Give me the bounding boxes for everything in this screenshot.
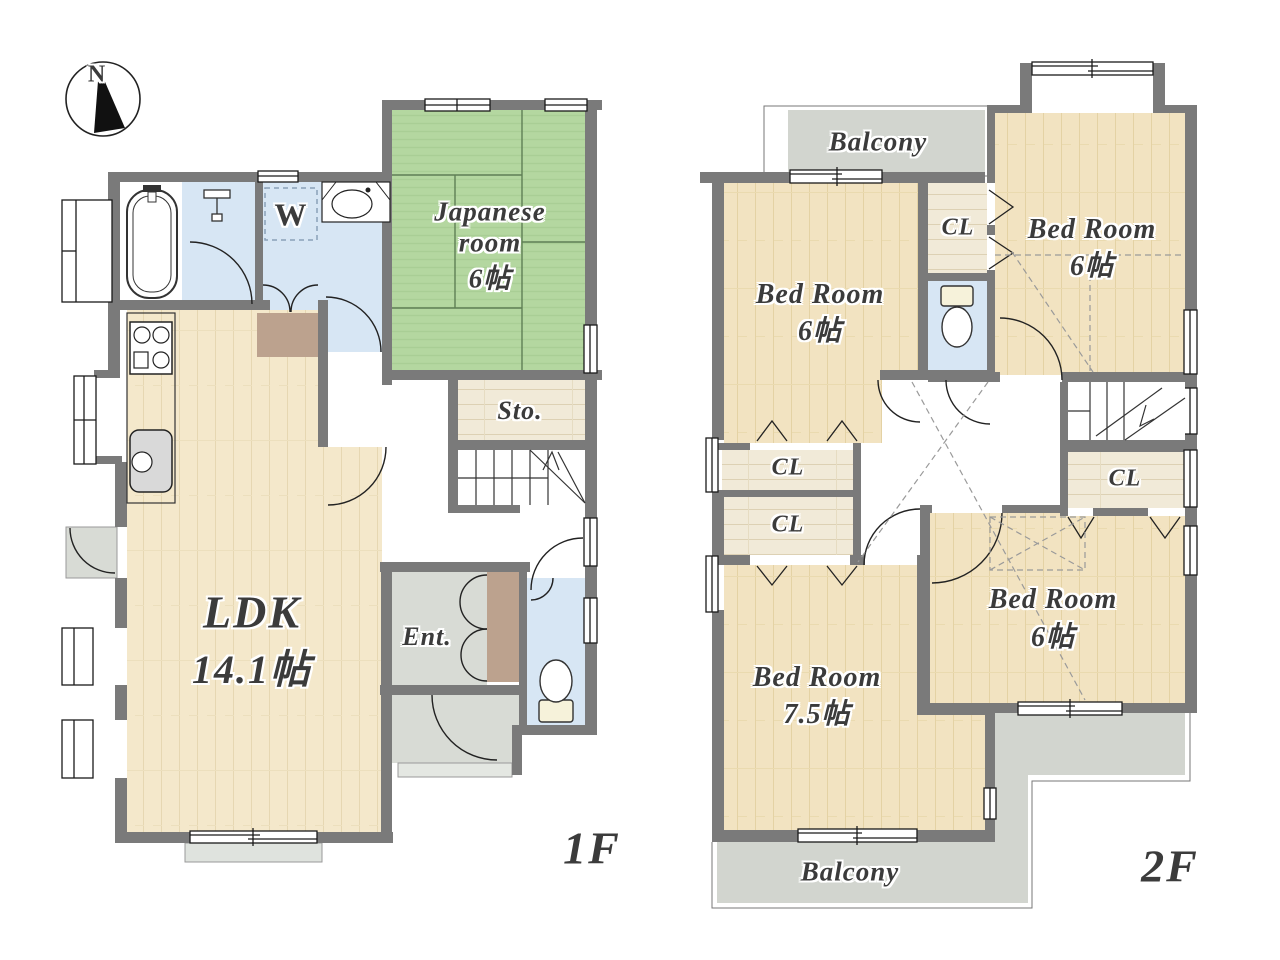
stairs-1f <box>458 450 585 505</box>
balcony-south-label: Balcony <box>801 857 900 888</box>
storage-label: Sto. <box>497 396 542 426</box>
compass-north-label: N <box>88 62 106 89</box>
japanese-room-label-line2: room <box>459 228 522 259</box>
bedroom-sw-label: Bed Room <box>753 662 882 694</box>
toilet-2f-icon <box>941 286 973 347</box>
floor1-label: 1F <box>563 822 621 875</box>
toilet-icon <box>539 660 573 722</box>
entrance-label: Ent. <box>402 622 452 652</box>
bedroom-nw-size-label: 6帖 <box>798 309 842 349</box>
floor2-label: 2F <box>1141 840 1199 893</box>
stairs-2f <box>1068 382 1185 440</box>
bedroom-nw-label: Bed Room <box>756 279 885 311</box>
bathtub-icon <box>127 185 177 298</box>
floor-plan-drawing <box>0 0 1280 960</box>
closet-east-label: CL <box>1109 466 1142 493</box>
closet-west-lower-label: CL <box>772 512 805 539</box>
floor-plan-page: N Japanese room 6帖 Sto. LDK 14.1帖 Ent. W… <box>0 0 1280 960</box>
vanity-sink-icon <box>322 182 390 222</box>
closet-north-label: CL <box>942 215 975 242</box>
bedroom-se-size-label: 6帖 <box>1031 615 1075 655</box>
ldk-label: LDK <box>203 586 301 639</box>
balcony-north-label: Balcony <box>829 127 928 158</box>
bedroom-ne-label: Bed Room <box>1028 214 1157 246</box>
japanese-room-label-line1: Japanese <box>434 197 546 228</box>
toilet-2f-door-arc <box>946 380 990 424</box>
washer-label: W <box>275 197 308 234</box>
ldk-size-label: 14.1帖 <box>192 637 312 695</box>
bedroom-ne-size-label: 6帖 <box>1070 244 1114 284</box>
closet-west-upper-label: CL <box>772 455 805 482</box>
bedroom-sw-door-arc <box>864 509 920 565</box>
japanese-room-size-label: 6帖 <box>469 257 512 296</box>
bedroom-se-label: Bed Room <box>989 584 1118 616</box>
bedroom-sw-size-label: 7.5帖 <box>783 692 850 732</box>
stove-icon <box>130 322 172 374</box>
